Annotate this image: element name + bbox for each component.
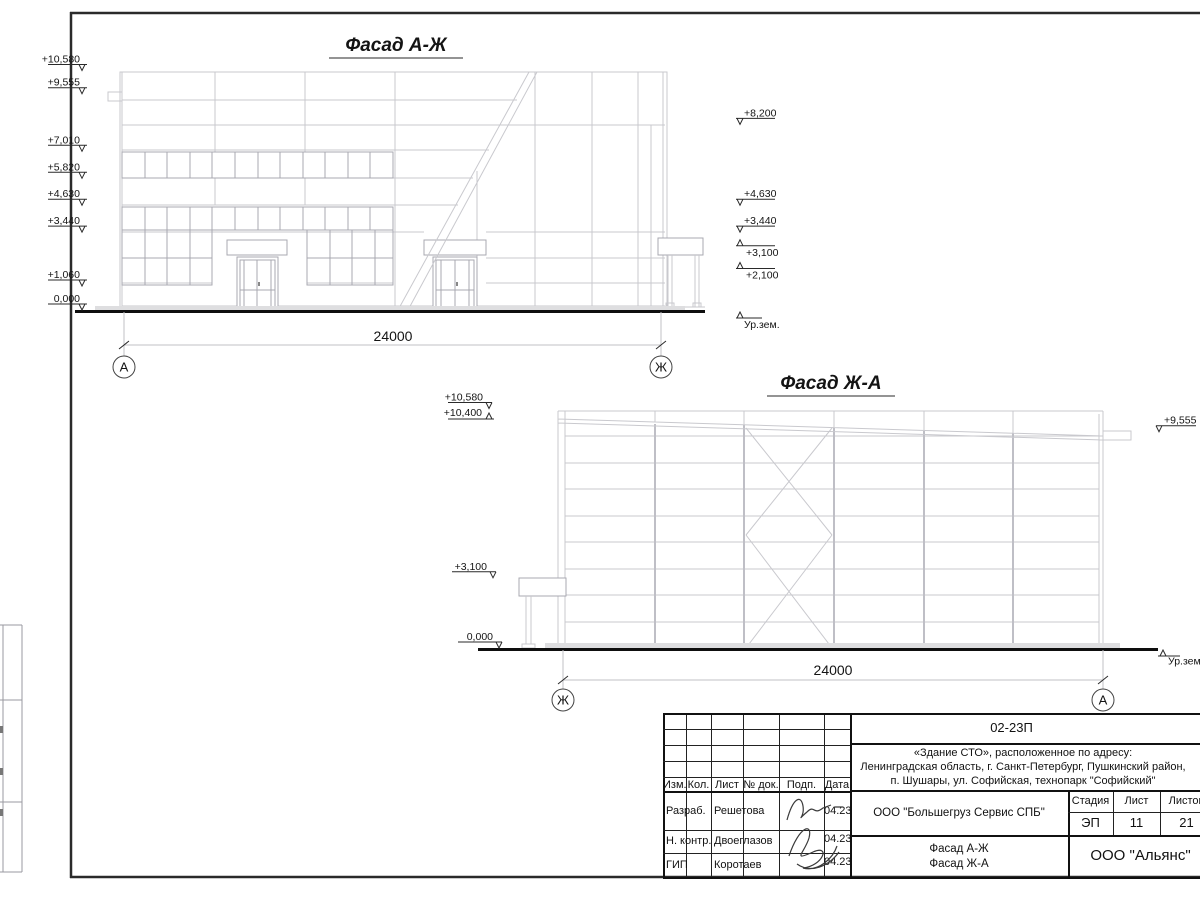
axis-letter-left: А (120, 360, 129, 375)
dimension-ja: 24000 Ж А (552, 650, 1114, 711)
level-mark: +2,100 (746, 270, 779, 282)
tb-sheet-value: 11 (1113, 816, 1160, 830)
ribbon-windows (122, 152, 393, 178)
ground-strip (545, 643, 1120, 648)
level-mark: +9,555 (48, 77, 81, 89)
dimension-text: 24000 (814, 662, 853, 678)
level-mark: 0,000 (54, 293, 80, 305)
level-mark: +7,010 (48, 134, 81, 146)
entrance-door-1 (227, 240, 287, 308)
level-mark: +10,580 (42, 54, 80, 66)
tb-address-line-2: Ленинградская область, г. Санкт-Петербур… (853, 760, 1193, 774)
levels-right-aj: +8,200 +4,630 +3,440 +3,100 +2,100 Ур.зе… (736, 107, 780, 331)
level-mark: +10,580 (445, 392, 483, 404)
tb-name-1: Решетова (714, 804, 764, 818)
dimension-aj: 24000 А Ж (113, 312, 672, 378)
tb-client: ООО "Большегруз Сервис СПБ" (850, 806, 1068, 820)
levels-left-ja: +10,580 +10,400 +3,100 0,000 (444, 392, 502, 649)
tb-sheet-label: Лист (1113, 794, 1160, 808)
axis-letter-left: Ж (557, 693, 569, 708)
levels-left-aj: +10,580 +9,555 +7,010 +5,820 +4,630 +3,4… (42, 54, 87, 311)
side-canopy (519, 578, 566, 648)
level-mark: +3,100 (746, 247, 779, 259)
level-mark: +3,100 (455, 561, 488, 573)
tb-org: ООО "Альянс" (1068, 835, 1200, 877)
tb-col-doc: № док. (743, 778, 779, 792)
level-mark: 0,000 (467, 631, 493, 643)
tb-name-2: Двоеглазов (714, 834, 772, 848)
tb-col-podp: Подп. (779, 778, 824, 792)
side-porch (658, 238, 705, 307)
ground-level-label: Ур.зем. (1168, 656, 1200, 668)
left-margin-table (0, 625, 22, 872)
dimension-text: 24000 (374, 328, 413, 344)
ground-level-label: Ур.зем. (744, 319, 780, 331)
tb-doc-code: 02-23П (850, 721, 1173, 735)
level-mark: +3,440 (48, 215, 81, 227)
tb-role-2: Н. контр. (666, 834, 711, 848)
level-mark: +8,200 (744, 107, 777, 119)
facade-ja-drawing: Фасад Ж-А 24000 Ж А (444, 373, 1200, 711)
tb-stage-value: ЭП (1068, 816, 1113, 830)
x-bracing (746, 428, 832, 648)
tb-sheets-value: 21 (1160, 816, 1200, 830)
tb-name-3: Коротаев (714, 858, 762, 872)
level-mark: +5,820 (48, 161, 81, 173)
tb-col-kol: Кол. (686, 778, 711, 792)
axis-letter-right: А (1099, 693, 1108, 708)
level-mark: +4,630 (48, 188, 81, 200)
facade-aj-drawing: Фасад А-Ж (42, 35, 780, 378)
drawing-sheet: Фасад А-Ж (0, 0, 1200, 900)
tb-role-1: Разраб. (666, 804, 706, 818)
tb-stage-label: Стадия (1068, 794, 1113, 808)
level-mark: +1,060 (48, 269, 81, 281)
tb-col-list: Лист (711, 778, 743, 792)
entrance-door-2 (424, 240, 486, 308)
level-mark: +4,630 (744, 188, 777, 200)
tb-col-izm: Изм. (663, 778, 686, 792)
tb-address-line-1: «Здание СТО», расположенное по адресу: (853, 746, 1193, 760)
axis-letter-right: Ж (655, 360, 667, 375)
tb-sheets-label: Листов (1160, 794, 1200, 808)
tb-content-line-2: Фасад Ж-А (850, 857, 1068, 871)
facade-aj-title: Фасад А-Ж (345, 35, 448, 56)
tb-col-data: Дата (824, 778, 850, 792)
tb-content-line-1: Фасад А-Ж (850, 842, 1068, 856)
facade-ja-title: Фасад Ж-А (780, 373, 881, 394)
level-mark: +10,400 (444, 407, 482, 419)
ground-strip (95, 306, 685, 310)
title-block: Изм. Кол. Лист № док. Подп. Дата Разраб.… (663, 713, 1200, 879)
signatures (779, 792, 850, 878)
level-mark: +3,440 (744, 215, 777, 227)
level-mark: +9,555 (1164, 415, 1197, 427)
tb-role-3: ГИП (666, 858, 688, 872)
tb-address-line-3: п. Шушары, ул. Софийская, технопарк "Соф… (853, 774, 1193, 788)
levels-right-ja: +9,555 Ур.зем. (1156, 415, 1200, 668)
